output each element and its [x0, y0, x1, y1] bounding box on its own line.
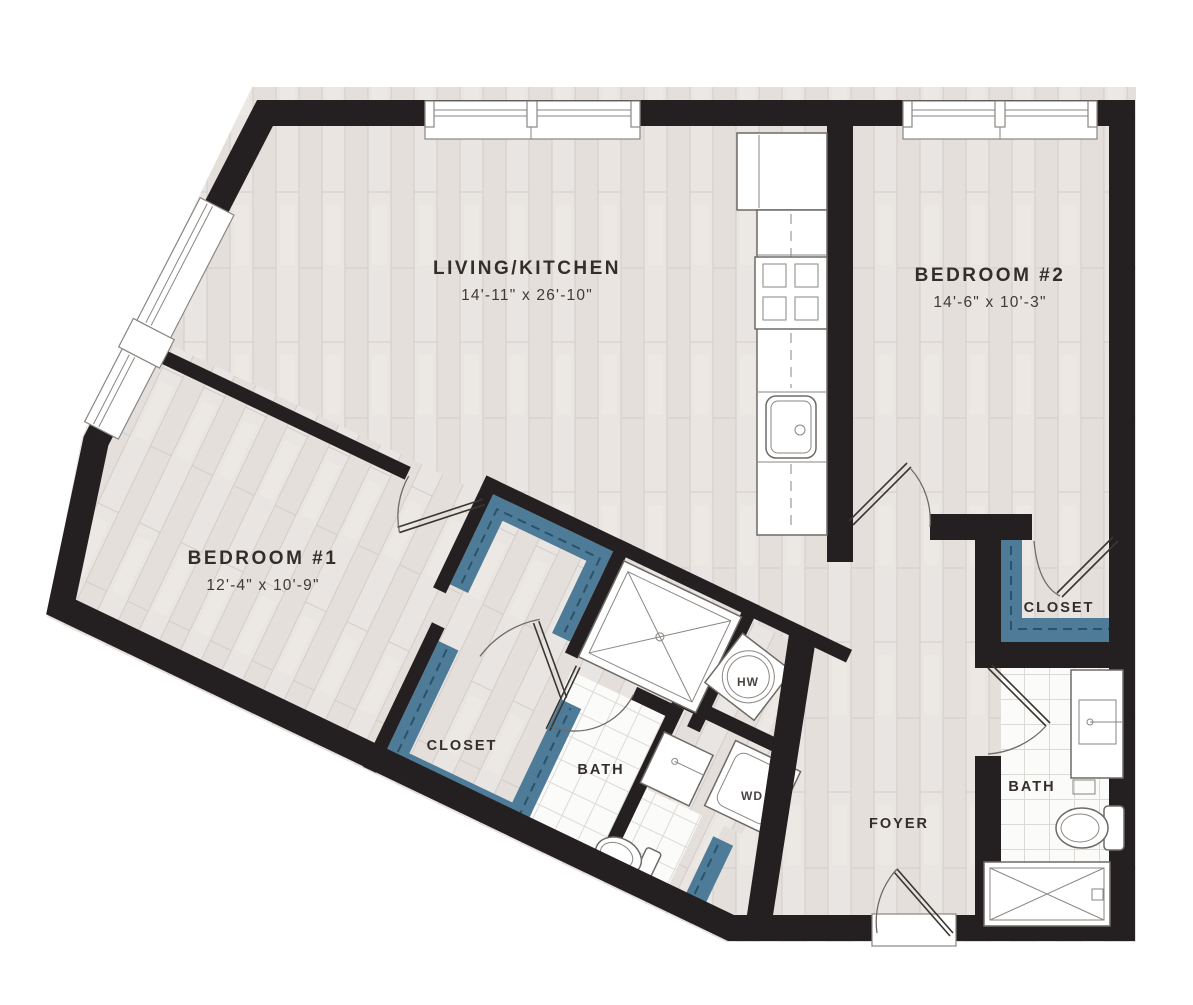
- living-kitchen-dims: 14'-11" x 26'-10": [461, 287, 593, 304]
- water-heater-label: HW: [737, 675, 759, 689]
- floor-plan: LIVING/KITCHEN 14'-11" x 26'-10" BEDROOM…: [0, 0, 1193, 1000]
- bath2-label: BATH: [1008, 779, 1055, 795]
- bath1-label: BATH: [577, 762, 624, 778]
- living-kitchen-label: LIVING/KITCHEN: [433, 258, 621, 279]
- closet-bedroom2-label: CLOSET: [1024, 600, 1095, 616]
- closet-bedroom1-label: CLOSET: [427, 738, 498, 754]
- washer-dryer-label: WD: [741, 789, 763, 803]
- bathtub: [984, 862, 1110, 926]
- floor-plan-page: LIVING/KITCHEN 14'-11" x 26'-10" BEDROOM…: [0, 0, 1193, 1000]
- stove: [755, 257, 827, 329]
- bedroom2-dims: 14'-6" x 10'-3": [933, 294, 1046, 311]
- living-windows: [425, 101, 640, 139]
- refrigerator: [737, 133, 827, 210]
- foyer-label: FOYER: [869, 816, 929, 832]
- kitchen-sink: [766, 396, 816, 458]
- bedroom2-windows: [903, 101, 1097, 139]
- bedroom1-dims: 12'-4" x 10'-9": [206, 577, 319, 594]
- bedroom2-label: BEDROOM #2: [915, 265, 1066, 286]
- bedroom1-label: BEDROOM #1: [188, 548, 339, 569]
- bath2-vanity-sink: [1071, 670, 1123, 794]
- bath2-toilet: [1056, 806, 1124, 850]
